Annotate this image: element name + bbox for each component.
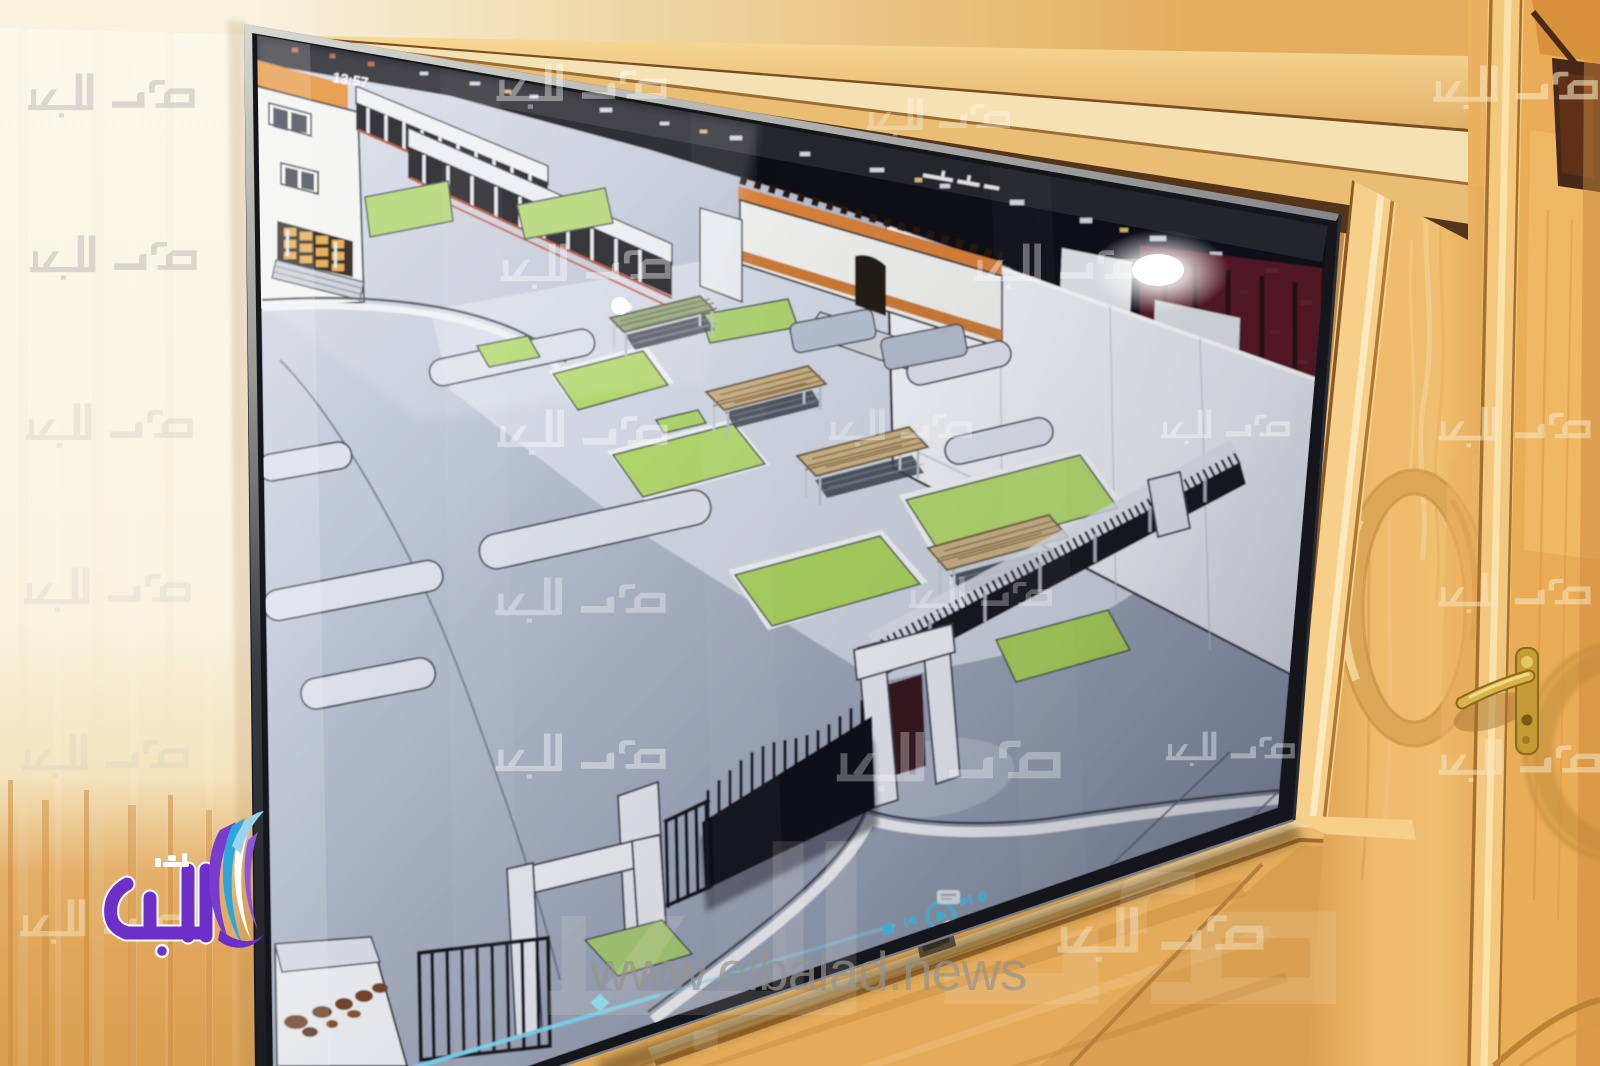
svg-text:www.elbalad.news: www.elbalad.news [589, 940, 1026, 1002]
